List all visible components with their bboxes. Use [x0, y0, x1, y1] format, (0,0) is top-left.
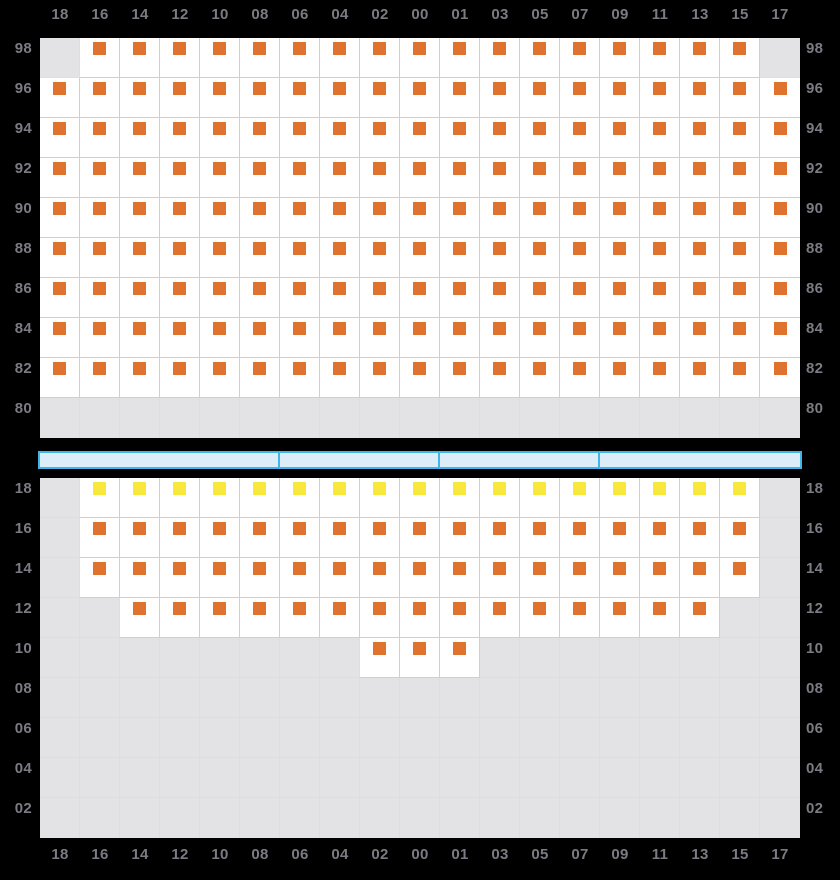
grid-cell[interactable] — [680, 558, 720, 598]
grid-cell[interactable] — [640, 518, 680, 558]
column-label: 14 — [120, 847, 160, 863]
grid-cell[interactable] — [440, 78, 480, 118]
square-marker-icon — [573, 162, 586, 175]
grid-cell[interactable] — [400, 78, 440, 118]
grid-cell — [480, 638, 520, 678]
grid-cell[interactable] — [480, 558, 520, 598]
grid-cell[interactable] — [680, 198, 720, 238]
grid-cell[interactable] — [640, 278, 680, 318]
grid-cell[interactable] — [520, 358, 560, 398]
grid-cell[interactable] — [760, 318, 800, 358]
square-marker-icon — [293, 522, 306, 535]
grid-cell[interactable] — [640, 478, 680, 518]
grid-cell[interactable] — [720, 478, 760, 518]
grid-cell[interactable] — [520, 278, 560, 318]
scrollbar-segment[interactable] — [440, 453, 600, 467]
grid-cell[interactable] — [320, 278, 360, 318]
grid-cell[interactable] — [440, 38, 480, 78]
grid-cell[interactable] — [400, 158, 440, 198]
grid-cell[interactable] — [720, 558, 760, 598]
grid-cell — [600, 758, 640, 798]
grid-cell[interactable] — [560, 38, 600, 78]
square-marker-icon — [373, 162, 386, 175]
square-marker-icon — [453, 602, 466, 615]
grid-cell[interactable] — [640, 238, 680, 278]
square-marker-icon — [653, 82, 666, 95]
grid-cell[interactable] — [400, 358, 440, 398]
grid-cell[interactable] — [240, 198, 280, 238]
grid-cell[interactable] — [560, 598, 600, 638]
grid-cell — [480, 718, 520, 758]
grid-cell[interactable] — [360, 158, 400, 198]
grid-cell[interactable] — [600, 78, 640, 118]
grid-cell[interactable] — [720, 158, 760, 198]
square-marker-icon — [453, 122, 466, 135]
square-marker-icon — [213, 162, 226, 175]
grid-cell[interactable] — [200, 158, 240, 198]
grid-cell[interactable] — [80, 318, 120, 358]
square-marker-icon — [373, 562, 386, 575]
grid-cell[interactable] — [40, 118, 80, 158]
scrollbar-segment[interactable] — [40, 453, 280, 467]
grid-cell[interactable] — [760, 278, 800, 318]
grid-cell[interactable] — [640, 198, 680, 238]
grid-cell[interactable] — [520, 198, 560, 238]
grid-cell[interactable] — [120, 358, 160, 398]
grid-cell[interactable] — [320, 78, 360, 118]
grid-cell[interactable] — [760, 78, 800, 118]
grid-cell[interactable] — [280, 158, 320, 198]
grid-cell[interactable] — [720, 78, 760, 118]
grid-cell[interactable] — [400, 38, 440, 78]
grid-cell[interactable] — [360, 478, 400, 518]
grid-cell[interactable] — [600, 198, 640, 238]
grid-cell[interactable] — [120, 158, 160, 198]
grid-cell[interactable] — [440, 558, 480, 598]
grid-cell[interactable] — [480, 38, 520, 78]
grid-cell[interactable] — [280, 358, 320, 398]
grid-cell[interactable] — [680, 358, 720, 398]
grid-cell[interactable] — [200, 358, 240, 398]
grid-cell[interactable] — [280, 78, 320, 118]
grid-cell[interactable] — [680, 78, 720, 118]
grid-cell[interactable] — [320, 38, 360, 78]
grid-cell[interactable] — [720, 278, 760, 318]
grid-cell[interactable] — [760, 158, 800, 198]
grid-cell[interactable] — [320, 558, 360, 598]
grid-cell[interactable] — [80, 78, 120, 118]
grid-cell[interactable] — [760, 198, 800, 238]
column-label: 01 — [440, 847, 480, 863]
grid-cell[interactable] — [240, 318, 280, 358]
grid-cell[interactable] — [480, 158, 520, 198]
grid-cell[interactable] — [200, 558, 240, 598]
column-label: 00 — [400, 7, 440, 23]
grid-cell[interactable] — [480, 118, 520, 158]
grid-cell[interactable] — [600, 38, 640, 78]
grid-cell[interactable] — [280, 598, 320, 638]
grid-cell[interactable] — [360, 558, 400, 598]
grid-cell[interactable] — [400, 598, 440, 638]
grid-cell[interactable] — [160, 518, 200, 558]
grid-cell[interactable] — [400, 638, 440, 678]
grid-cell[interactable] — [640, 558, 680, 598]
grid-cell[interactable] — [280, 278, 320, 318]
grid-cell[interactable] — [400, 518, 440, 558]
grid-cell[interactable] — [200, 198, 240, 238]
grid-cell[interactable] — [200, 118, 240, 158]
grid-cell[interactable] — [80, 518, 120, 558]
grid-cell[interactable] — [360, 238, 400, 278]
grid-cell[interactable] — [560, 238, 600, 278]
grid-cell[interactable] — [40, 358, 80, 398]
grid-cell[interactable] — [200, 478, 240, 518]
grid-cell[interactable] — [120, 518, 160, 558]
square-marker-icon — [253, 202, 266, 215]
grid-cell[interactable] — [160, 158, 200, 198]
scrollbar-segment[interactable] — [600, 453, 800, 467]
grid-cell[interactable] — [720, 318, 760, 358]
square-marker-icon — [173, 282, 186, 295]
square-marker-icon — [333, 522, 346, 535]
grid-cell[interactable] — [320, 198, 360, 238]
grid-cell[interactable] — [400, 118, 440, 158]
grid-cell[interactable] — [480, 78, 520, 118]
grid-cell[interactable] — [120, 318, 160, 358]
square-marker-icon — [453, 522, 466, 535]
square-marker-icon — [653, 602, 666, 615]
grid-cell[interactable] — [480, 598, 520, 638]
column-label: 09 — [600, 847, 640, 863]
grid-cell[interactable] — [240, 278, 280, 318]
grid-cell[interactable] — [520, 238, 560, 278]
grid-cell[interactable] — [120, 598, 160, 638]
grid-cell[interactable] — [360, 198, 400, 238]
square-marker-icon — [133, 322, 146, 335]
grid-cell[interactable] — [80, 278, 120, 318]
square-marker-icon — [573, 322, 586, 335]
grid-cell[interactable] — [440, 358, 480, 398]
grid-cell[interactable] — [40, 238, 80, 278]
grid-cell[interactable] — [40, 318, 80, 358]
grid-cell[interactable] — [680, 318, 720, 358]
grid-cell[interactable] — [600, 518, 640, 558]
grid-cell — [720, 758, 760, 798]
grid-cell — [720, 638, 760, 678]
square-marker-icon — [693, 82, 706, 95]
grid-cell[interactable] — [560, 158, 600, 198]
scrollbar-segment[interactable] — [280, 453, 440, 467]
grid-cell[interactable] — [160, 38, 200, 78]
grid-cell — [160, 678, 200, 718]
grid-cell[interactable] — [680, 278, 720, 318]
square-marker-icon — [373, 322, 386, 335]
grid-cell[interactable] — [80, 358, 120, 398]
grid-cell[interactable] — [480, 278, 520, 318]
pager-scrollbar[interactable] — [38, 451, 802, 469]
square-marker-icon — [693, 322, 706, 335]
grid-cell[interactable] — [40, 158, 80, 198]
grid-cell[interactable] — [440, 278, 480, 318]
grid-cell[interactable] — [600, 558, 640, 598]
grid-cell[interactable] — [160, 598, 200, 638]
grid-cell[interactable] — [640, 158, 680, 198]
grid-cell[interactable] — [120, 278, 160, 318]
grid-cell[interactable] — [600, 158, 640, 198]
grid-cell — [520, 638, 560, 678]
grid-cell[interactable] — [280, 478, 320, 518]
grid-cell[interactable] — [280, 118, 320, 158]
grid-cell[interactable] — [80, 478, 120, 518]
grid-cell — [640, 758, 680, 798]
grid-cell[interactable] — [200, 38, 240, 78]
grid-cell[interactable] — [160, 478, 200, 518]
grid-cell[interactable] — [360, 638, 400, 678]
grid-cell[interactable] — [520, 518, 560, 558]
grid-cell[interactable] — [600, 278, 640, 318]
grid-cell[interactable] — [360, 598, 400, 638]
grid-cell[interactable] — [520, 78, 560, 118]
grid-cell[interactable] — [440, 518, 480, 558]
grid-cell[interactable] — [720, 118, 760, 158]
grid-cell[interactable] — [120, 38, 160, 78]
grid-cell[interactable] — [120, 238, 160, 278]
bottom-column-axis: 18161412100806040200010305070911131517 — [40, 847, 800, 863]
grid-cell[interactable] — [80, 38, 120, 78]
grid-cell — [560, 798, 600, 838]
square-marker-icon — [93, 282, 106, 295]
grid-cell[interactable] — [720, 198, 760, 238]
grid-cell[interactable] — [720, 238, 760, 278]
grid-cell[interactable] — [360, 318, 400, 358]
grid-cell[interactable] — [80, 238, 120, 278]
grid-cell[interactable] — [640, 38, 680, 78]
grid-cell[interactable] — [160, 118, 200, 158]
grid-cell[interactable] — [200, 598, 240, 638]
grid-cell[interactable] — [160, 198, 200, 238]
grid-cell[interactable] — [360, 78, 400, 118]
grid-cell[interactable] — [400, 478, 440, 518]
grid-cell — [440, 678, 480, 718]
grid-cell[interactable] — [520, 38, 560, 78]
grid-cell[interactable] — [680, 118, 720, 158]
grid-cell[interactable] — [400, 318, 440, 358]
grid-cell[interactable] — [80, 558, 120, 598]
grid-cell[interactable] — [600, 118, 640, 158]
grid-cell[interactable] — [440, 318, 480, 358]
grid-cell[interactable] — [480, 478, 520, 518]
row-label: 14 — [806, 558, 838, 580]
grid-cell[interactable] — [640, 598, 680, 638]
grid-cell[interactable] — [240, 558, 280, 598]
grid-cell[interactable] — [520, 558, 560, 598]
grid-cell[interactable] — [40, 78, 80, 118]
grid-cell[interactable] — [640, 118, 680, 158]
grid-cell[interactable] — [600, 358, 640, 398]
grid-cell[interactable] — [400, 558, 440, 598]
grid-cell[interactable] — [120, 558, 160, 598]
grid-cell[interactable] — [720, 358, 760, 398]
grid-cell — [320, 718, 360, 758]
square-marker-icon — [253, 162, 266, 175]
grid-cell[interactable] — [160, 278, 200, 318]
grid-cell[interactable] — [560, 318, 600, 358]
square-marker-icon — [573, 522, 586, 535]
grid-cell[interactable] — [400, 238, 440, 278]
grid-cell[interactable] — [160, 558, 200, 598]
grid-cell[interactable] — [680, 478, 720, 518]
grid-cell[interactable] — [680, 518, 720, 558]
grid-cell[interactable] — [600, 598, 640, 638]
grid-cell[interactable] — [480, 238, 520, 278]
grid-cell[interactable] — [160, 358, 200, 398]
grid-cell[interactable] — [120, 118, 160, 158]
grid-cell[interactable] — [240, 158, 280, 198]
grid-cell[interactable] — [160, 318, 200, 358]
grid-cell[interactable] — [320, 518, 360, 558]
grid-cell[interactable] — [360, 358, 400, 398]
grid-cell[interactable] — [480, 518, 520, 558]
grid-cell[interactable] — [680, 38, 720, 78]
grid-cell — [120, 718, 160, 758]
grid-cell[interactable] — [280, 558, 320, 598]
grid-cell[interactable] — [240, 118, 280, 158]
grid-cell[interactable] — [320, 598, 360, 638]
grid-cell[interactable] — [240, 598, 280, 638]
square-marker-icon — [133, 362, 146, 375]
grid-cell[interactable] — [640, 358, 680, 398]
grid-cell[interactable] — [680, 238, 720, 278]
square-marker-icon — [613, 362, 626, 375]
grid-cell[interactable] — [360, 118, 400, 158]
grid-cell[interactable] — [560, 478, 600, 518]
grid-cell[interactable] — [560, 558, 600, 598]
grid-cell[interactable] — [80, 158, 120, 198]
grid-cell[interactable] — [240, 358, 280, 398]
grid-cell[interactable] — [520, 318, 560, 358]
grid-cell[interactable] — [240, 38, 280, 78]
grid-cell[interactable] — [560, 358, 600, 398]
grid-cell[interactable] — [280, 38, 320, 78]
grid-cell[interactable] — [400, 198, 440, 238]
grid-cell[interactable] — [200, 518, 240, 558]
square-marker-icon — [333, 82, 346, 95]
grid-cell[interactable] — [760, 238, 800, 278]
grid-cell — [400, 758, 440, 798]
grid-cell[interactable] — [440, 118, 480, 158]
grid-cell[interactable] — [720, 38, 760, 78]
grid-cell[interactable] — [560, 198, 600, 238]
column-label: 08 — [240, 847, 280, 863]
grid-cell[interactable] — [480, 318, 520, 358]
grid-cell[interactable] — [280, 518, 320, 558]
grid-cell[interactable] — [80, 118, 120, 158]
grid-cell[interactable] — [200, 318, 240, 358]
grid-cell[interactable] — [560, 518, 600, 558]
grid-cell[interactable] — [240, 238, 280, 278]
grid-cell[interactable] — [480, 358, 520, 398]
row-label: 82 — [0, 358, 32, 380]
grid-cell[interactable] — [760, 358, 800, 398]
grid-cell[interactable] — [280, 238, 320, 278]
grid-cell[interactable] — [640, 318, 680, 358]
grid-cell[interactable] — [760, 118, 800, 158]
square-marker-icon — [733, 202, 746, 215]
grid-cell[interactable] — [520, 158, 560, 198]
grid-cell[interactable] — [520, 118, 560, 158]
grid-cell[interactable] — [560, 78, 600, 118]
grid-cell[interactable] — [80, 198, 120, 238]
square-marker-icon — [173, 42, 186, 55]
grid-cell — [120, 398, 160, 438]
grid-cell[interactable] — [200, 278, 240, 318]
grid-cell[interactable] — [120, 198, 160, 238]
grid-cell[interactable] — [440, 478, 480, 518]
grid-cell[interactable] — [440, 638, 480, 678]
grid-cell[interactable] — [640, 78, 680, 118]
grid-cell[interactable] — [560, 278, 600, 318]
grid-cell[interactable] — [160, 78, 200, 118]
grid-cell[interactable] — [600, 478, 640, 518]
grid-cell[interactable] — [440, 198, 480, 238]
grid-cell[interactable] — [720, 518, 760, 558]
grid-cell[interactable] — [600, 238, 640, 278]
grid-cell[interactable] — [240, 518, 280, 558]
grid-cell[interactable] — [240, 78, 280, 118]
square-marker-icon — [213, 522, 226, 535]
grid-cell[interactable] — [520, 478, 560, 518]
grid-cell[interactable] — [600, 318, 640, 358]
square-marker-icon — [333, 602, 346, 615]
column-label: 13 — [680, 847, 720, 863]
grid-cell[interactable] — [320, 238, 360, 278]
grid-cell[interactable] — [520, 598, 560, 638]
grid-cell[interactable] — [320, 478, 360, 518]
square-marker-icon — [774, 242, 787, 255]
grid-cell[interactable] — [200, 78, 240, 118]
square-marker-icon — [293, 322, 306, 335]
column-label: 13 — [680, 7, 720, 23]
grid-cell[interactable] — [40, 198, 80, 238]
grid-cell[interactable] — [160, 238, 200, 278]
grid-cell[interactable] — [240, 478, 280, 518]
square-marker-icon — [774, 162, 787, 175]
grid-cell[interactable] — [440, 598, 480, 638]
grid-cell[interactable] — [320, 118, 360, 158]
grid-cell[interactable] — [320, 318, 360, 358]
grid-cell[interactable] — [400, 278, 440, 318]
grid-cell[interactable] — [440, 238, 480, 278]
grid-cell[interactable] — [280, 198, 320, 238]
grid-cell[interactable] — [360, 518, 400, 558]
row-label: 80 — [0, 398, 32, 420]
grid-cell[interactable] — [120, 478, 160, 518]
grid-cell[interactable] — [120, 78, 160, 118]
grid-cell[interactable] — [680, 158, 720, 198]
grid-cell[interactable] — [560, 118, 600, 158]
grid-cell[interactable] — [440, 158, 480, 198]
grid-cell[interactable] — [360, 278, 400, 318]
grid-cell[interactable] — [40, 278, 80, 318]
grid-cell[interactable] — [320, 358, 360, 398]
grid-cell[interactable] — [480, 198, 520, 238]
grid-cell[interactable] — [320, 158, 360, 198]
grid-cell[interactable] — [280, 318, 320, 358]
grid-cell[interactable] — [360, 38, 400, 78]
grid-cell[interactable] — [680, 598, 720, 638]
square-marker-icon — [653, 242, 666, 255]
grid-cell[interactable] — [200, 238, 240, 278]
